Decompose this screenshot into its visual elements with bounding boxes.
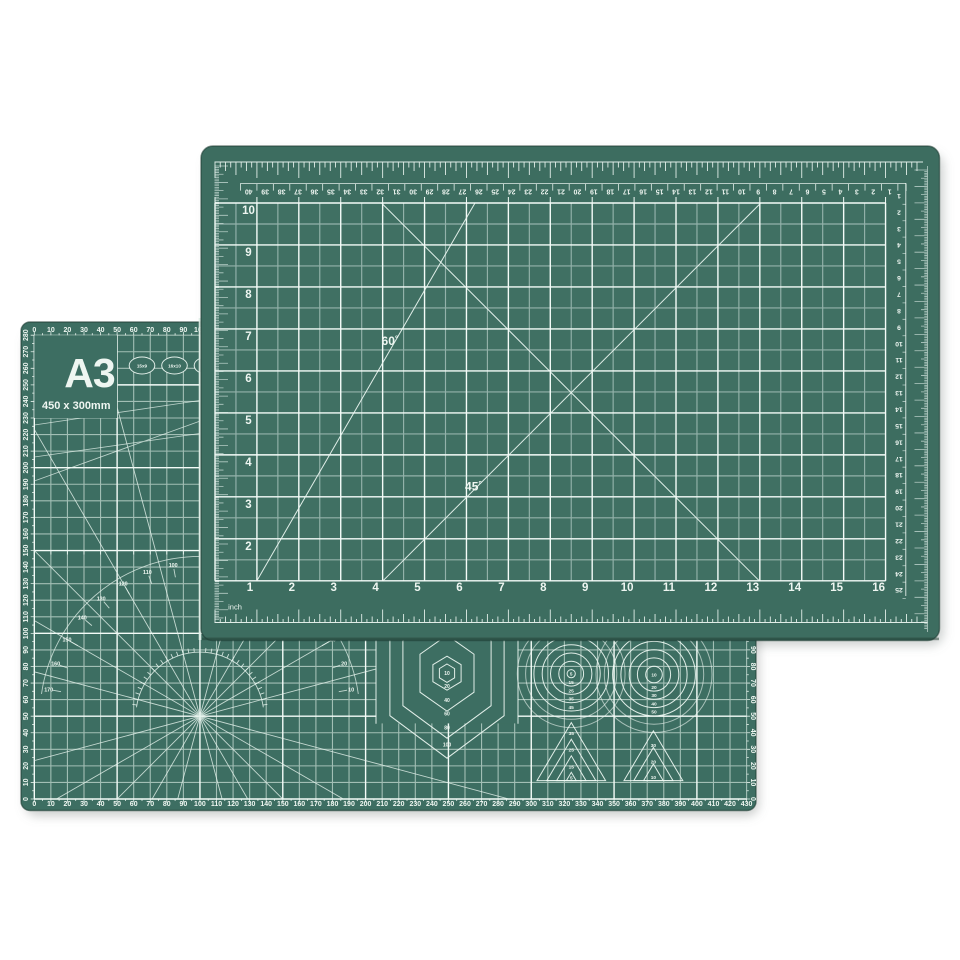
svg-text:15: 15 xyxy=(569,680,575,686)
svg-text:13: 13 xyxy=(688,188,696,195)
svg-text:10: 10 xyxy=(749,779,756,787)
svg-text:30: 30 xyxy=(23,745,30,753)
svg-text:210: 210 xyxy=(376,801,388,808)
svg-text:1: 1 xyxy=(247,582,254,594)
svg-text:60: 60 xyxy=(749,696,756,704)
svg-text:200: 200 xyxy=(23,462,30,474)
svg-text:17: 17 xyxy=(623,188,631,195)
svg-text:3: 3 xyxy=(245,499,251,511)
svg-text:130: 130 xyxy=(97,597,106,603)
svg-text:inch: inch xyxy=(228,603,242,612)
svg-text:15: 15 xyxy=(895,422,903,429)
svg-text:6: 6 xyxy=(245,373,251,385)
svg-text:30: 30 xyxy=(651,743,657,749)
svg-text:10: 10 xyxy=(444,671,450,677)
svg-text:29: 29 xyxy=(426,188,434,195)
svg-text:340: 340 xyxy=(592,801,604,808)
svg-text:160: 160 xyxy=(51,662,60,668)
svg-text:12: 12 xyxy=(895,373,903,380)
svg-text:45: 45 xyxy=(569,705,575,711)
svg-text:21: 21 xyxy=(557,188,565,195)
svg-text:320: 320 xyxy=(559,801,571,808)
svg-text:30: 30 xyxy=(651,693,657,699)
svg-text:180: 180 xyxy=(327,801,339,808)
svg-text:20: 20 xyxy=(23,762,30,770)
svg-text:8: 8 xyxy=(540,582,547,594)
svg-text:19: 19 xyxy=(590,188,598,195)
svg-text:70: 70 xyxy=(146,801,154,808)
svg-text:150: 150 xyxy=(63,638,72,644)
svg-text:10: 10 xyxy=(651,673,657,679)
svg-text:280: 280 xyxy=(492,801,504,808)
svg-text:420: 420 xyxy=(724,801,736,808)
svg-text:8: 8 xyxy=(773,188,777,195)
svg-text:220: 220 xyxy=(23,429,30,441)
svg-text:150: 150 xyxy=(23,545,30,557)
svg-text:280: 280 xyxy=(23,329,30,341)
svg-text:300: 300 xyxy=(525,801,537,808)
svg-text:100: 100 xyxy=(194,801,206,808)
svg-text:240: 240 xyxy=(426,801,438,808)
svg-text:15: 15 xyxy=(569,764,575,770)
svg-text:20: 20 xyxy=(573,188,581,195)
svg-text:50: 50 xyxy=(749,712,756,720)
svg-text:5: 5 xyxy=(414,582,421,594)
svg-text:13: 13 xyxy=(895,389,903,396)
svg-text:0: 0 xyxy=(23,797,30,801)
svg-text:10: 10 xyxy=(895,340,903,347)
svg-text:A3: A3 xyxy=(64,350,115,396)
svg-text:0: 0 xyxy=(32,801,36,808)
svg-text:150: 150 xyxy=(277,801,289,808)
svg-text:20: 20 xyxy=(341,662,347,668)
svg-text:37: 37 xyxy=(294,188,302,195)
svg-text:170: 170 xyxy=(44,688,53,694)
svg-text:130: 130 xyxy=(23,578,30,590)
svg-text:9: 9 xyxy=(897,323,901,330)
svg-text:10: 10 xyxy=(621,582,634,594)
svg-text:140: 140 xyxy=(260,801,272,808)
svg-text:21: 21 xyxy=(895,521,903,528)
svg-text:90: 90 xyxy=(23,646,30,654)
svg-text:16x10: 16x10 xyxy=(168,364,181,369)
svg-text:50: 50 xyxy=(113,327,121,334)
svg-text:2: 2 xyxy=(289,582,295,594)
svg-text:40: 40 xyxy=(245,188,253,195)
svg-text:20: 20 xyxy=(444,684,450,690)
svg-text:20: 20 xyxy=(651,685,657,691)
svg-text:3: 3 xyxy=(897,225,901,232)
svg-text:19: 19 xyxy=(895,488,903,495)
svg-text:80: 80 xyxy=(163,327,171,334)
svg-text:0: 0 xyxy=(749,797,756,801)
svg-text:240: 240 xyxy=(23,395,30,407)
svg-text:27: 27 xyxy=(458,188,466,195)
svg-text:450 x 300mm: 450 x 300mm xyxy=(42,400,111,412)
svg-text:35: 35 xyxy=(327,188,335,195)
svg-text:330: 330 xyxy=(575,801,587,808)
svg-text:170: 170 xyxy=(23,511,30,523)
svg-text:100: 100 xyxy=(23,627,30,639)
svg-text:20: 20 xyxy=(749,762,756,770)
svg-text:410: 410 xyxy=(708,801,720,808)
svg-text:40: 40 xyxy=(749,729,756,737)
svg-text:70: 70 xyxy=(749,679,756,687)
svg-text:110: 110 xyxy=(143,570,152,576)
svg-text:40: 40 xyxy=(97,327,105,334)
svg-text:12: 12 xyxy=(705,188,713,195)
svg-text:22: 22 xyxy=(895,537,903,544)
svg-text:270: 270 xyxy=(476,801,488,808)
svg-text:20: 20 xyxy=(895,504,903,511)
svg-text:30: 30 xyxy=(749,745,756,753)
svg-text:230: 230 xyxy=(409,801,421,808)
svg-text:25: 25 xyxy=(895,586,903,593)
svg-text:260: 260 xyxy=(23,362,30,374)
svg-text:2: 2 xyxy=(897,208,901,215)
svg-text:430: 430 xyxy=(741,801,753,808)
svg-text:9: 9 xyxy=(245,247,251,259)
svg-text:50: 50 xyxy=(113,801,121,808)
svg-text:35: 35 xyxy=(569,731,575,737)
svg-text:15: 15 xyxy=(830,582,843,594)
svg-text:10: 10 xyxy=(47,327,55,334)
svg-text:140: 140 xyxy=(78,616,87,622)
svg-text:10: 10 xyxy=(47,801,55,808)
svg-text:170: 170 xyxy=(310,801,322,808)
svg-text:80: 80 xyxy=(444,725,450,731)
svg-text:30: 30 xyxy=(80,801,88,808)
svg-text:28: 28 xyxy=(442,188,450,195)
svg-text:7: 7 xyxy=(245,331,251,343)
svg-text:38: 38 xyxy=(278,188,286,195)
svg-text:18: 18 xyxy=(606,188,614,195)
svg-text:2: 2 xyxy=(245,541,251,553)
svg-text:2: 2 xyxy=(871,188,875,195)
svg-text:5: 5 xyxy=(245,415,252,427)
svg-text:40: 40 xyxy=(651,701,657,707)
svg-text:350: 350 xyxy=(608,801,620,808)
svg-text:6: 6 xyxy=(456,582,462,594)
svg-text:200: 200 xyxy=(360,801,372,808)
svg-text:16: 16 xyxy=(639,188,647,195)
svg-text:7: 7 xyxy=(789,188,793,195)
svg-text:25: 25 xyxy=(569,748,575,754)
svg-text:190: 190 xyxy=(343,801,355,808)
svg-text:23: 23 xyxy=(524,188,532,195)
svg-text:13: 13 xyxy=(746,582,759,594)
svg-text:8: 8 xyxy=(245,289,252,301)
svg-text:40: 40 xyxy=(97,801,105,808)
svg-text:5: 5 xyxy=(897,258,901,265)
svg-text:100: 100 xyxy=(169,563,178,569)
svg-text:7: 7 xyxy=(897,291,901,298)
svg-text:250: 250 xyxy=(23,379,30,391)
svg-text:16: 16 xyxy=(895,438,903,445)
svg-text:7: 7 xyxy=(498,582,504,594)
svg-text:24: 24 xyxy=(508,188,516,195)
svg-text:90: 90 xyxy=(180,327,188,334)
svg-text:380: 380 xyxy=(658,801,670,808)
svg-text:100: 100 xyxy=(443,742,452,748)
svg-text:15: 15 xyxy=(656,188,664,195)
svg-text:90: 90 xyxy=(749,646,756,654)
svg-text:60: 60 xyxy=(130,801,138,808)
svg-text:26: 26 xyxy=(475,188,483,195)
svg-text:110: 110 xyxy=(211,801,222,808)
svg-text:80: 80 xyxy=(749,663,756,671)
svg-text:3: 3 xyxy=(330,582,336,594)
svg-text:10: 10 xyxy=(651,775,657,781)
svg-text:11: 11 xyxy=(895,356,902,363)
svg-text:0: 0 xyxy=(32,327,36,334)
svg-text:120: 120 xyxy=(23,594,30,606)
svg-text:60: 60 xyxy=(23,696,30,704)
svg-text:160: 160 xyxy=(23,528,30,540)
svg-text:40: 40 xyxy=(444,698,450,704)
svg-text:14: 14 xyxy=(672,188,680,195)
svg-text:60: 60 xyxy=(444,712,450,718)
svg-text:4: 4 xyxy=(838,188,842,195)
svg-text:24: 24 xyxy=(895,570,903,577)
svg-text:25: 25 xyxy=(491,188,499,195)
svg-text:210: 210 xyxy=(23,445,30,457)
svg-text:140: 140 xyxy=(23,561,30,573)
svg-text:33: 33 xyxy=(360,188,368,195)
svg-text:290: 290 xyxy=(509,801,521,808)
svg-text:30: 30 xyxy=(80,327,88,334)
svg-text:23: 23 xyxy=(895,553,903,560)
svg-text:20: 20 xyxy=(64,801,72,808)
svg-text:360: 360 xyxy=(625,801,637,808)
svg-text:3: 3 xyxy=(855,188,859,195)
svg-text:6: 6 xyxy=(897,274,901,281)
svg-text:400: 400 xyxy=(691,801,703,808)
svg-text:220: 220 xyxy=(393,801,405,808)
svg-text:14: 14 xyxy=(895,406,903,413)
svg-text:250: 250 xyxy=(443,801,455,808)
svg-text:160: 160 xyxy=(293,801,305,808)
svg-text:370: 370 xyxy=(641,801,653,808)
svg-text:5: 5 xyxy=(570,775,573,781)
svg-text:10: 10 xyxy=(23,778,30,786)
svg-text:9: 9 xyxy=(756,188,760,195)
svg-text:17: 17 xyxy=(895,455,903,462)
svg-text:18: 18 xyxy=(895,471,903,478)
svg-text:32: 32 xyxy=(376,188,384,195)
svg-text:230: 230 xyxy=(23,412,30,424)
svg-text:4: 4 xyxy=(897,241,901,248)
svg-text:50: 50 xyxy=(651,710,657,716)
svg-text:31: 31 xyxy=(393,188,401,195)
svg-text:120: 120 xyxy=(227,801,239,808)
svg-text:12: 12 xyxy=(705,582,718,594)
svg-text:30: 30 xyxy=(409,188,417,195)
svg-text:180: 180 xyxy=(23,495,30,507)
svg-text:310: 310 xyxy=(542,801,554,808)
svg-text:270: 270 xyxy=(23,346,30,358)
svg-text:16: 16 xyxy=(872,582,885,594)
svg-text:8: 8 xyxy=(897,307,901,314)
svg-text:5: 5 xyxy=(822,188,826,195)
svg-text:6: 6 xyxy=(805,188,809,195)
svg-text:50: 50 xyxy=(23,712,30,720)
svg-text:10: 10 xyxy=(348,688,354,694)
svg-text:260: 260 xyxy=(459,801,471,808)
svg-text:1: 1 xyxy=(888,188,892,195)
svg-text:22: 22 xyxy=(541,188,549,195)
svg-text:90: 90 xyxy=(180,801,188,808)
svg-text:34: 34 xyxy=(343,188,351,195)
svg-text:20: 20 xyxy=(651,760,657,766)
svg-text:1: 1 xyxy=(897,192,901,199)
svg-text:70: 70 xyxy=(146,327,154,334)
svg-text:15x9: 15x9 xyxy=(137,364,148,369)
svg-text:36: 36 xyxy=(310,188,318,195)
svg-text:5: 5 xyxy=(570,672,573,677)
svg-text:130: 130 xyxy=(244,801,256,808)
svg-text:39: 39 xyxy=(261,188,269,195)
svg-text:25: 25 xyxy=(569,688,575,694)
svg-text:11: 11 xyxy=(721,188,728,195)
svg-text:10: 10 xyxy=(738,188,746,195)
svg-text:70: 70 xyxy=(23,679,30,687)
svg-text:120: 120 xyxy=(119,581,128,587)
svg-text:390: 390 xyxy=(674,801,686,808)
svg-text:10: 10 xyxy=(242,205,255,217)
svg-text:190: 190 xyxy=(23,478,30,490)
svg-text:40: 40 xyxy=(23,729,30,737)
svg-text:35: 35 xyxy=(569,697,575,703)
svg-text:11: 11 xyxy=(663,582,676,594)
svg-text:14: 14 xyxy=(788,582,801,594)
svg-text:110: 110 xyxy=(23,611,30,622)
svg-text:60: 60 xyxy=(130,327,138,334)
svg-text:80: 80 xyxy=(163,801,171,808)
svg-text:20: 20 xyxy=(64,327,72,334)
svg-text:4: 4 xyxy=(245,457,252,469)
svg-text:9: 9 xyxy=(582,582,588,594)
svg-text:80: 80 xyxy=(23,663,30,671)
svg-text:4: 4 xyxy=(372,582,379,594)
